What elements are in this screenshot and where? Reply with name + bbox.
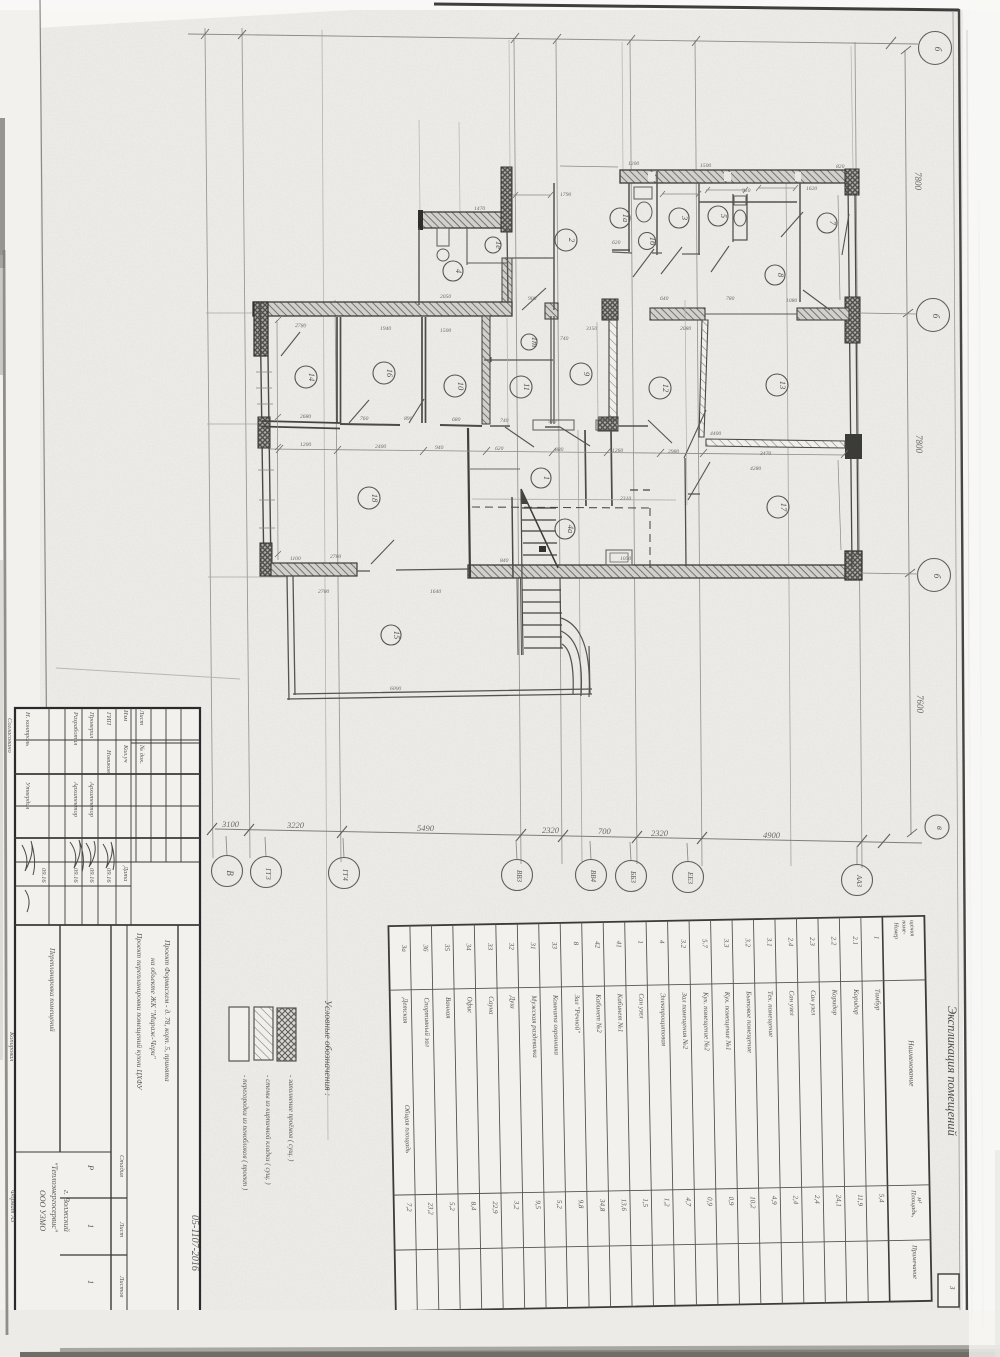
svg-text:Сан узел: Сан узел xyxy=(809,990,817,1015)
svg-text:Перепланировка помещений: Перепланировка помещений xyxy=(48,947,56,1032)
svg-text:Кабинет №2: Кабинет №2 xyxy=(594,993,603,1033)
svg-text:11: 11 xyxy=(522,383,532,391)
svg-text:Кух. помещение №2: Кух. помещение №2 xyxy=(702,991,711,1051)
svg-text:Детская: Детская xyxy=(401,997,410,1024)
svg-text:680: 680 xyxy=(452,417,461,423)
svg-text:№ док.: № док. xyxy=(138,744,145,764)
svg-text:23,2: 23,2 xyxy=(426,1202,434,1215)
svg-text:7800: 7800 xyxy=(913,172,923,191)
svg-text:Коридор: Коридор xyxy=(852,988,861,1015)
svg-text:- стены из кирпичной кладки (: - стены из кирпичной кладки ( сущ. ) xyxy=(264,1075,272,1185)
svg-text:3а: 3а xyxy=(400,944,408,953)
svg-text:1200: 1200 xyxy=(300,442,311,448)
svg-text:33: 33 xyxy=(550,941,558,950)
svg-text:14: 14 xyxy=(307,373,317,382)
svg-text:2.1: 2.1 xyxy=(851,936,859,945)
svg-text:0,9: 0,9 xyxy=(727,1197,735,1206)
svg-text:Разработал: Разработал xyxy=(72,711,79,745)
svg-text:33: 33 xyxy=(486,942,494,951)
svg-text:4280: 4280 xyxy=(750,466,761,472)
svg-text:3: 3 xyxy=(680,215,690,220)
svg-text:Р: Р xyxy=(86,1164,96,1170)
svg-text:8: 8 xyxy=(572,942,580,946)
svg-text:4900: 4900 xyxy=(763,830,781,840)
svg-text:б: б xyxy=(933,47,943,52)
svg-text:Сан узел: Сан узел xyxy=(637,993,645,1018)
svg-text:1080: 1080 xyxy=(786,298,797,304)
svg-text:1,5: 1,5 xyxy=(641,1198,649,1207)
svg-text:2980: 2980 xyxy=(668,449,679,455)
svg-text:3.2: 3.2 xyxy=(679,938,687,948)
svg-text:2.3: 2.3 xyxy=(808,937,816,946)
svg-text:3150: 3150 xyxy=(585,326,597,332)
svg-text:Экспликация помещений: Экспликация помещений xyxy=(945,1006,959,1137)
svg-text:Душ: Душ xyxy=(508,995,516,1010)
svg-text:3.3: 3.3 xyxy=(722,938,730,948)
svg-text:13: 13 xyxy=(778,381,788,390)
svg-text:ГГ3: ГГ3 xyxy=(264,867,272,880)
svg-text:4,9: 4,9 xyxy=(770,1196,778,1205)
svg-text:5,2: 5,2 xyxy=(555,1200,563,1209)
svg-text:ООО УЗМО: ООО УЗМО xyxy=(38,1190,47,1231)
svg-text:Архитектор: Архитектор xyxy=(88,781,95,818)
svg-text:- заполнение проёмов ( сущ. ): - заполнение проёмов ( сущ. ) xyxy=(287,1075,295,1162)
svg-text:32: 32 xyxy=(507,942,515,951)
svg-text:поме-: поме- xyxy=(900,920,906,934)
svg-text:3470: 3470 xyxy=(759,451,771,457)
svg-text:1е: 1е xyxy=(494,241,504,249)
svg-text:2080: 2080 xyxy=(680,326,691,332)
svg-text:840: 840 xyxy=(500,558,509,564)
svg-text:Номер: Номер xyxy=(892,921,898,939)
svg-text:2320: 2320 xyxy=(651,828,669,838)
svg-text:Листов: Листов xyxy=(118,1275,125,1297)
svg-text:09.16: 09.16 xyxy=(105,868,112,883)
svg-text:Новиков: Новиков xyxy=(105,749,112,773)
svg-text:Площадь,: Площадь, xyxy=(910,1189,918,1218)
svg-text:щения: щения xyxy=(908,920,914,936)
svg-text:Наименование: Наименование xyxy=(907,1039,917,1087)
svg-text:Кабинет №1: Кабинет №1 xyxy=(616,993,625,1033)
svg-text:31: 31 xyxy=(529,941,537,949)
svg-text:1500: 1500 xyxy=(700,163,711,169)
svg-text:в: в xyxy=(935,826,945,830)
svg-text:ГГ4: ГГ4 xyxy=(341,868,349,881)
svg-text:34: 34 xyxy=(464,943,472,952)
svg-text:22,9: 22,9 xyxy=(491,1201,499,1214)
svg-text:1050: 1050 xyxy=(620,556,631,562)
svg-text:2680: 2680 xyxy=(300,414,311,420)
svg-text:740: 740 xyxy=(560,336,569,342)
svg-text:15: 15 xyxy=(392,631,402,640)
svg-text:2320: 2320 xyxy=(542,825,560,835)
svg-text:11,9: 11,9 xyxy=(856,1194,864,1206)
svg-text:35: 35 xyxy=(443,943,451,952)
svg-text:3,2: 3,2 xyxy=(512,1200,520,1210)
svg-text:Кол.уч: Кол.уч xyxy=(122,744,129,763)
svg-text:Ванная: Ванная xyxy=(444,997,452,1019)
svg-text:Коридор: Коридор xyxy=(831,989,840,1016)
svg-text:3220: 3220 xyxy=(286,820,305,830)
svg-text:09.16: 09.16 xyxy=(88,868,95,883)
svg-text:3.2: 3.2 xyxy=(744,937,752,947)
svg-text:700: 700 xyxy=(598,826,612,836)
svg-text:Сауна: Сауна xyxy=(487,996,495,1015)
svg-text:10: 10 xyxy=(456,382,466,391)
svg-text:Копировал: Копировал xyxy=(8,1031,15,1061)
svg-text:Лист: Лист xyxy=(138,709,145,726)
svg-text:09.16: 09.16 xyxy=(72,868,79,883)
svg-text:0,9: 0,9 xyxy=(706,1197,714,1206)
svg-text:Дата: Дата xyxy=(122,865,129,881)
svg-text:Кух. помещение №1: Кух. помещение №1 xyxy=(723,991,732,1051)
svg-text:10,2: 10,2 xyxy=(749,1196,757,1209)
svg-text:780: 780 xyxy=(726,296,735,302)
svg-text:Согласовано: Согласовано xyxy=(6,718,13,753)
svg-text:17: 17 xyxy=(779,503,789,512)
svg-text:5: 5 xyxy=(719,214,729,218)
svg-text:34,8: 34,8 xyxy=(598,1198,606,1212)
svg-text:8,4: 8,4 xyxy=(469,1202,477,1211)
svg-text:940: 940 xyxy=(435,445,444,451)
svg-text:3: 3 xyxy=(948,1285,956,1290)
svg-text:Архитектор: Архитектор xyxy=(72,781,79,818)
svg-text:В: В xyxy=(225,870,235,876)
svg-text:13,6: 13,6 xyxy=(620,1199,628,1212)
svg-text:9,5: 9,5 xyxy=(534,1200,542,1209)
svg-text:1,2: 1,2 xyxy=(663,1198,671,1207)
svg-text:Н. контроль: Н. контроль xyxy=(24,711,31,746)
svg-text:Проект Формасхем - д. 78, корп: Проект Формасхем - д. 78, корп. 5, приня… xyxy=(163,939,172,1082)
svg-text:5,4: 5,4 xyxy=(877,1194,885,1203)
svg-text:Офис: Офис xyxy=(465,997,473,1015)
svg-text:1470: 1470 xyxy=(474,206,485,212)
svg-text:1т: 1т xyxy=(530,337,540,347)
svg-text:Формат А3: Формат А3 xyxy=(9,1190,16,1223)
svg-text:Общая площадь: Общая площадь xyxy=(403,1105,412,1154)
svg-text:1260: 1260 xyxy=(612,448,623,454)
svg-text:б: б xyxy=(932,574,942,579)
svg-text:Зал "Речной": Зал "Речной" xyxy=(573,994,582,1033)
svg-text:740: 740 xyxy=(500,418,509,424)
svg-text:5,2: 5,2 xyxy=(448,1202,456,1211)
svg-text:Проверил: Проверил xyxy=(88,711,95,738)
svg-text:1100: 1100 xyxy=(290,556,301,562)
svg-text:ЕЕ3: ЕЕ3 xyxy=(686,871,694,885)
svg-text:Зал помещения №2: Зал помещения №2 xyxy=(680,992,689,1049)
svg-text:2050: 2050 xyxy=(440,294,451,300)
svg-text:1: 1 xyxy=(86,1280,96,1284)
svg-text:3.1: 3.1 xyxy=(765,937,773,947)
svg-text:м²: м² xyxy=(916,1196,923,1204)
svg-text:900: 900 xyxy=(528,296,537,302)
svg-text:1620: 1620 xyxy=(806,186,817,192)
svg-text:1б: 1б xyxy=(648,237,658,246)
svg-text:890: 890 xyxy=(404,416,413,422)
svg-text:ВВ4: ВВ4 xyxy=(589,870,597,883)
svg-text:620: 620 xyxy=(612,240,621,246)
svg-text:05-1107-2016: 05-1107-2016 xyxy=(189,1215,200,1271)
svg-text:1: 1 xyxy=(86,1224,96,1228)
svg-text:на объекте ЖК "Мираж-Чери": на объекте ЖК "Мираж-Чери" xyxy=(149,958,158,1060)
svg-text:г. Волжский: г. Волжский xyxy=(62,1190,71,1232)
svg-text:1790: 1790 xyxy=(560,192,571,198)
svg-text:36: 36 xyxy=(421,943,429,952)
svg-text:2780: 2780 xyxy=(330,554,341,560)
svg-text:2780: 2780 xyxy=(295,323,307,329)
svg-text:1500: 1500 xyxy=(440,328,451,334)
svg-text:Сан узел: Сан узел xyxy=(788,990,796,1015)
svg-text:2,4: 2,4 xyxy=(791,1195,799,1204)
svg-text:41: 41 xyxy=(615,941,623,948)
svg-text:Мужская раздевалка: Мужская раздевалка xyxy=(530,994,539,1058)
svg-text:Проект перепланировки помещени: Проект перепланировки помещений кухни ЦХ… xyxy=(135,932,144,1091)
svg-text:Условные обозначения :: Условные обозначения : xyxy=(322,1000,333,1096)
svg-text:6000: 6000 xyxy=(390,686,401,692)
svg-text:1940: 1940 xyxy=(380,326,391,332)
svg-text:2310: 2310 xyxy=(620,496,631,502)
svg-text:Утвердил: Утвердил xyxy=(24,782,31,809)
svg-text:1200: 1200 xyxy=(628,161,639,167)
svg-text:б: б xyxy=(931,314,941,319)
svg-text:7,2: 7,2 xyxy=(405,1203,413,1212)
svg-text:АА3: АА3 xyxy=(855,874,863,888)
svg-text:1640: 1640 xyxy=(430,589,441,595)
svg-text:24,1: 24,1 xyxy=(834,1195,842,1207)
svg-text:2400: 2400 xyxy=(375,444,386,450)
svg-text:Стадия: Стадия xyxy=(118,1155,125,1177)
svg-text:Бытовое помещение: Бытовое помещение xyxy=(745,990,754,1053)
svg-text:3100: 3100 xyxy=(221,819,240,829)
svg-text:42: 42 xyxy=(593,941,601,949)
svg-text:ББ3: ББ3 xyxy=(629,870,637,883)
svg-text:5490: 5490 xyxy=(417,823,435,833)
svg-text:Тех. помещение: Тех. помещение xyxy=(766,991,775,1037)
svg-text:910: 910 xyxy=(548,419,557,425)
svg-text:880: 880 xyxy=(555,447,564,453)
svg-text:"Теплоэнергосервис": "Теплоэнергосервис" xyxy=(50,1162,59,1233)
svg-text:- перегородки из пеноблоков (: - перегородки из пеноблоков ( проект ) xyxy=(241,1075,249,1191)
svg-text:2,4: 2,4 xyxy=(813,1195,821,1204)
svg-text:7600: 7600 xyxy=(915,695,925,714)
svg-text:2.4: 2.4 xyxy=(787,937,795,946)
svg-text:Лист: Лист xyxy=(118,1221,125,1238)
svg-text:2.2: 2.2 xyxy=(830,937,838,946)
svg-text:9,8: 9,8 xyxy=(577,1199,585,1208)
svg-text:760: 760 xyxy=(360,416,369,422)
svg-text:640: 640 xyxy=(660,296,669,302)
svg-text:4400: 4400 xyxy=(710,431,721,437)
svg-text:820: 820 xyxy=(836,164,845,170)
svg-text:Тамбур: Тамбур xyxy=(874,989,882,1011)
svg-text:4,7: 4,7 xyxy=(684,1197,692,1206)
svg-text:5.7: 5.7 xyxy=(701,939,709,948)
svg-text:1: 1 xyxy=(872,936,880,940)
svg-text:09.16: 09.16 xyxy=(40,868,47,883)
svg-text:2700: 2700 xyxy=(318,589,329,595)
svg-text:ГИП: ГИП xyxy=(105,711,112,726)
svg-text:12: 12 xyxy=(661,384,671,393)
svg-text:1: 1 xyxy=(542,476,552,480)
svg-text:Примечание: Примечание xyxy=(911,1244,919,1279)
svg-text:7800: 7800 xyxy=(914,435,924,454)
svg-text:Изм: Изм xyxy=(122,709,129,721)
svg-text:Электрощитовая: Электрощитовая xyxy=(659,993,668,1046)
svg-text:620: 620 xyxy=(495,446,504,452)
svg-text:16: 16 xyxy=(385,369,395,378)
svg-text:ВВ3: ВВ3 xyxy=(515,870,523,883)
svg-text:1а: 1а xyxy=(621,214,631,223)
svg-text:4а: 4а xyxy=(566,525,576,534)
svg-text:Спортивный зал: Спортивный зал xyxy=(422,997,431,1047)
svg-text:1: 1 xyxy=(636,940,644,944)
svg-text:18: 18 xyxy=(370,494,380,503)
svg-text:Комната охранника: Комната охранника xyxy=(551,994,560,1056)
